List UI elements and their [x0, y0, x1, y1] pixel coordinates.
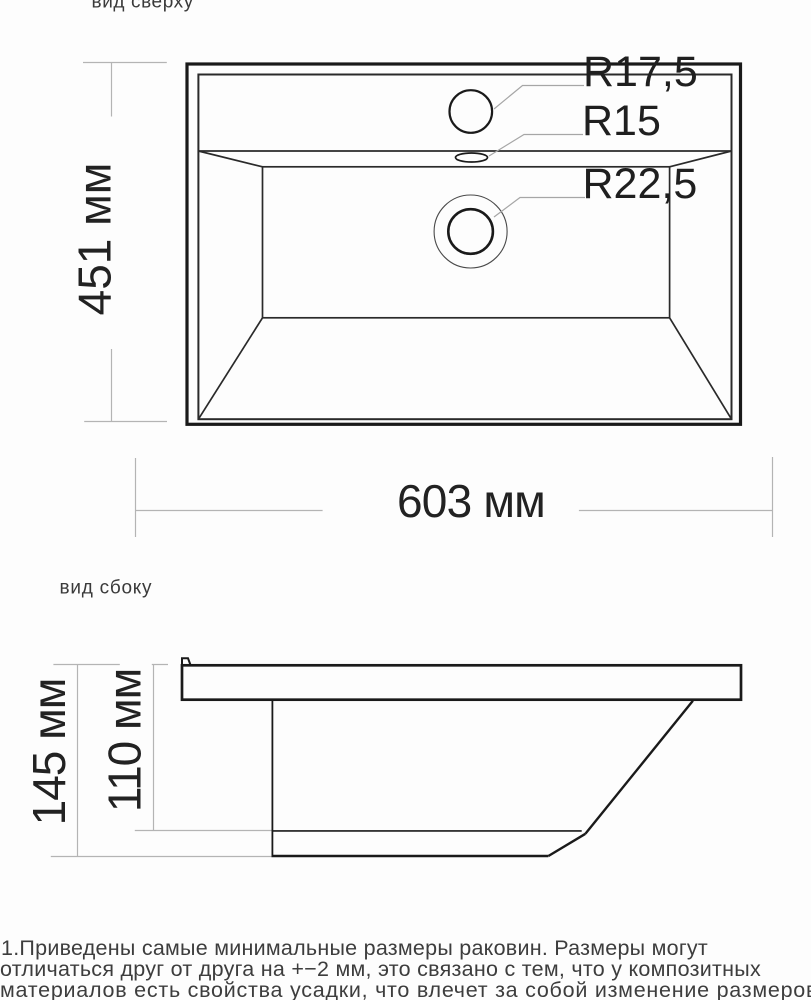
svg-text:вид сбоку: вид сбоку — [60, 577, 153, 598]
svg-text:R17,5: R17,5 — [583, 48, 698, 96]
svg-text:R15: R15 — [582, 97, 661, 145]
svg-text:материалов есть свойства усадк: материалов есть свойства усадки, что вле… — [0, 978, 811, 1000]
svg-text:603 мм: 603 мм — [397, 475, 545, 527]
svg-text:R22,5: R22,5 — [583, 160, 698, 208]
svg-text:вид сверху: вид сверху — [92, 0, 194, 13]
svg-text:110 мм: 110 мм — [98, 669, 150, 812]
svg-text:451 мм: 451 мм — [69, 163, 121, 316]
svg-text:145 мм: 145 мм — [23, 679, 75, 826]
